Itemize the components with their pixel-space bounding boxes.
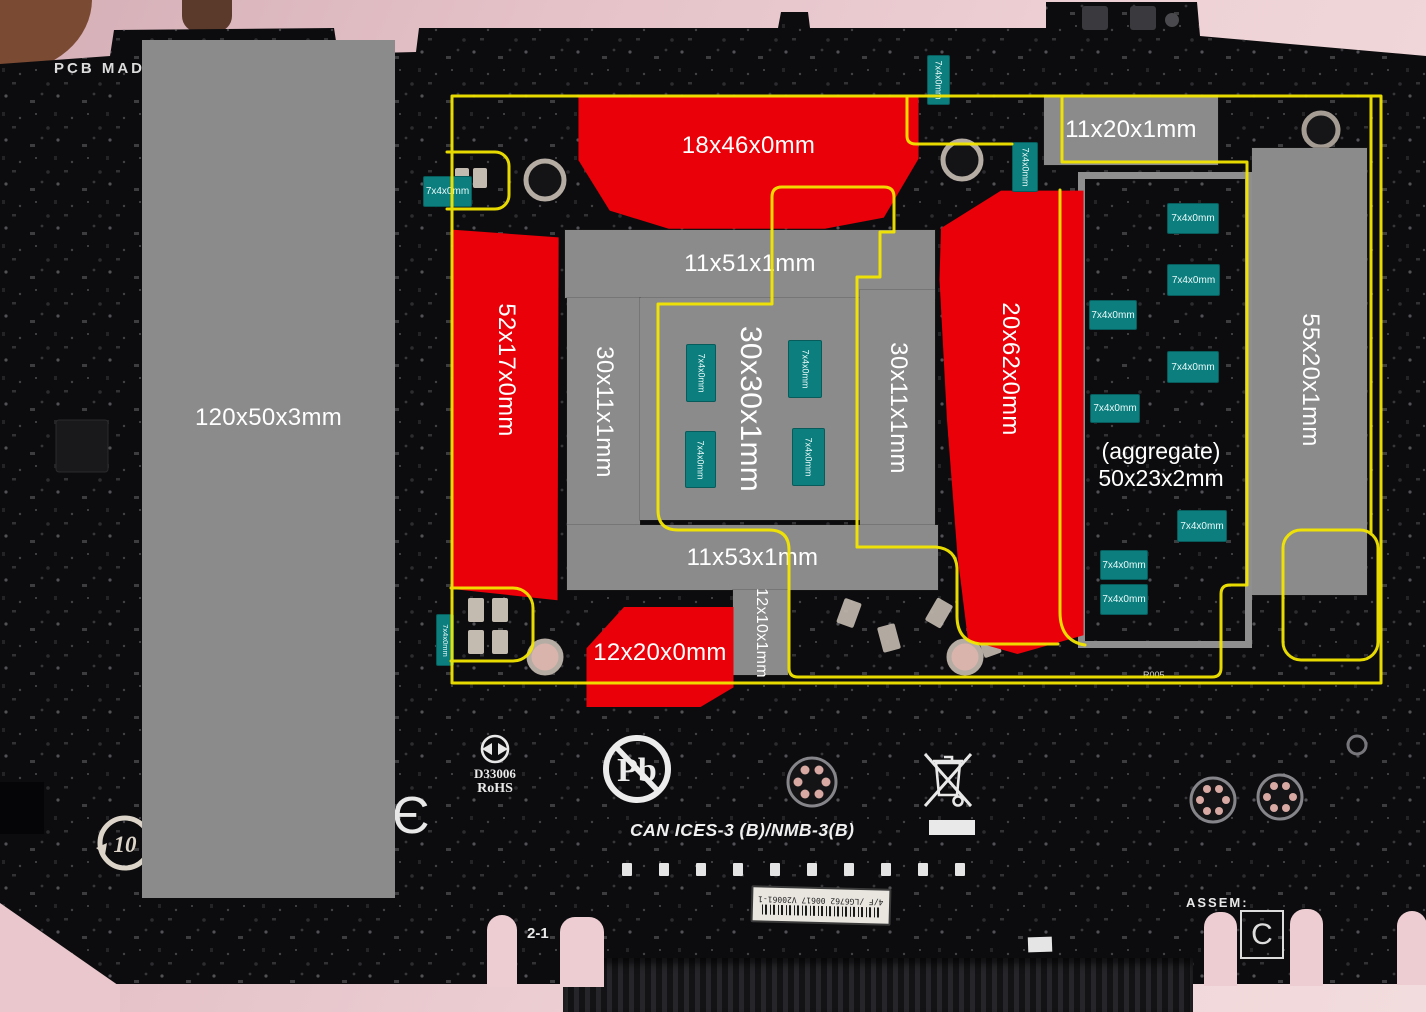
weee-underline-bar (929, 820, 975, 835)
dim-label: 120x50x3mm (195, 404, 342, 432)
dim-label: 55x20x1mm (1296, 313, 1324, 446)
bracket-slot (1130, 6, 1156, 30)
rohs-cert-number: D33006 (465, 766, 525, 782)
resistor-ref-small: R005 (1143, 670, 1165, 680)
dim-label: 20x62x0mm (996, 302, 1024, 435)
pcb-origin-text: PCB MAD (54, 60, 145, 77)
dim-label: 11x53x1mm (687, 544, 819, 572)
red-zone-left: 52x17x0mm (450, 226, 562, 604)
aggregate-line2: 50x23x2mm (1093, 465, 1229, 492)
dim-box-center-top: 11x51x1mm (565, 230, 935, 298)
red-zone-top: 18x46x0mm (575, 93, 922, 233)
assembly-label: ASSEM: (1186, 895, 1249, 910)
heatsink-fins (563, 958, 1193, 1012)
chip-7x4: 7x4x0mm (1090, 394, 1140, 423)
assembly-revision-box: C (1240, 910, 1284, 959)
small-label (1028, 937, 1053, 953)
edge-notch (1204, 912, 1237, 986)
chip-7x4: 7x4x0mm (436, 614, 454, 666)
dim-label: 11x20x1mm (1065, 116, 1197, 144)
chip-7x4: 7x4x0mm (1089, 300, 1137, 330)
aggregate-line1: (aggregate) (1093, 438, 1229, 465)
dim-label: 12x10x1mm (752, 588, 770, 678)
edge-notch (487, 915, 517, 987)
dim-label: 30x11x1mm (884, 342, 912, 474)
chip-7x4: 7x4x0mm (788, 340, 822, 398)
chip-7x4: 7x4x0mm (1167, 351, 1219, 383)
serial-sticker: 4/F /LG6762 00617 V20061-1 (751, 885, 892, 926)
dim-box-top-right: 11x20x1mm (1044, 95, 1218, 165)
chip-7x4: 7x4x0mm (1177, 510, 1227, 542)
efup-years: 10 (114, 832, 138, 857)
emc-statement: CAN ICES-3 (B)/NMB-3(B) (630, 820, 854, 841)
lead-free-icon: Pb (599, 731, 675, 811)
chip-7x4: 7x4x0mm (1167, 264, 1220, 296)
chip-7x4: 7x4x0mm (1100, 550, 1148, 580)
chip-7x4: 7x4x0mm (686, 344, 716, 402)
rohs-cert-icon (477, 734, 513, 764)
chip-7x4: 7x4x0mm (792, 428, 825, 486)
chip-7x4: 7x4x0mm (423, 176, 472, 207)
dim-label: 52x17x0mm (492, 303, 520, 436)
dim-label: 18x46x0mm (682, 132, 815, 160)
dim-box-below-center: 12x10x1mm (733, 590, 788, 675)
dim-label: 30x11x1mm (590, 346, 618, 478)
chip-7x4: 7x4x0mm (1100, 584, 1148, 615)
panel-marking: 2-1 (527, 925, 549, 942)
dim-label: 30x30x1mm (733, 326, 767, 492)
edge-notch (560, 917, 604, 987)
dim-box-center-left: 30x11x1mm (567, 298, 640, 525)
dim-box-center: 30x30x1mm (640, 298, 860, 520)
annotated-pcb-photo: PCB MAD D33006 RoHS Є Pb CAN ICES-3 (B)/… (0, 0, 1426, 1012)
dim-box-center-right: 30x11x1mm (860, 290, 935, 525)
chip-7x4: 7x4x0mm (927, 55, 950, 105)
dim-label: 12x20x0mm (593, 639, 726, 667)
dim-box-left-plate: 120x50x3mm (142, 40, 395, 898)
edge-notch (1290, 909, 1323, 986)
dim-label: 11x51x1mm (684, 250, 816, 278)
dim-box-right-tall: 55x20x1mm (1252, 148, 1367, 595)
dim-box-center-bottom: 11x53x1mm (567, 525, 938, 590)
chip-7x4: 7x4x0mm (1167, 203, 1219, 234)
ic-chip (56, 420, 108, 472)
assembly-revision: C (1251, 918, 1273, 952)
aggregate-annotation: (aggregate) 50x23x2mm (1093, 438, 1229, 492)
chip-7x4: 7x4x0mm (685, 431, 716, 488)
rohs-text: RoHS (465, 781, 525, 797)
weee-bin-icon (917, 748, 979, 816)
bracket-slot (1082, 6, 1108, 30)
chip-7x4: 7x4x0mm (1012, 142, 1038, 192)
edge-connector (0, 782, 44, 834)
edge-notch (1397, 911, 1426, 985)
ce-mark-partial: Є (392, 786, 429, 846)
